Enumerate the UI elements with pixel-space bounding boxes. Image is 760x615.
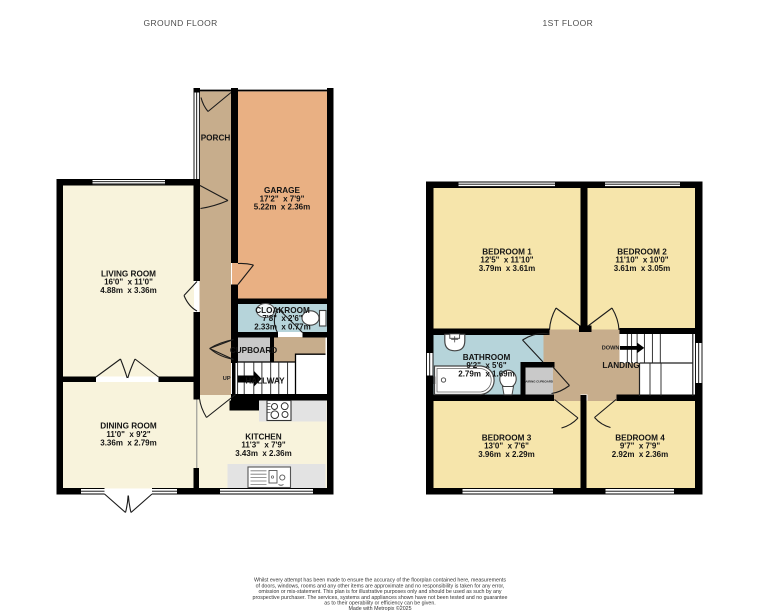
- svg-text:DOWN: DOWN: [602, 346, 620, 352]
- svg-text:3.79m x 3.61m: 3.79m x 3.61m: [479, 264, 535, 273]
- svg-text:3.61m x 3.05m: 3.61m x 3.05m: [614, 264, 670, 273]
- svg-text:UP: UP: [223, 376, 231, 382]
- svg-text:1ST FLOOR: 1ST FLOOR: [543, 18, 594, 28]
- svg-text:GROUND FLOOR: GROUND FLOOR: [144, 18, 218, 28]
- svg-text:LANDING: LANDING: [602, 361, 639, 370]
- svg-text:2.33m x 0.77m: 2.33m x 0.77m: [254, 323, 310, 332]
- svg-text:4.88m x 3.36m: 4.88m x 3.36m: [100, 286, 156, 295]
- svg-text:CUPBOARD: CUPBOARD: [230, 346, 277, 355]
- svg-text:2.92m x 2.36m: 2.92m x 2.36m: [612, 450, 668, 459]
- svg-text:3.36m x 2.79m: 3.36m x 2.79m: [100, 438, 156, 447]
- svg-text:2.79m x 1.69m: 2.79m x 1.69m: [458, 370, 514, 379]
- svg-text:3.96m x 2.29m: 3.96m x 2.29m: [478, 450, 534, 459]
- svg-text:AIRING CUPBOARD: AIRING CUPBOARD: [525, 379, 553, 383]
- svg-text:5.22m x 2.36m: 5.22m x 2.36m: [254, 203, 310, 212]
- svg-text:Made with Metropix ©2025: Made with Metropix ©2025: [348, 605, 411, 612]
- svg-text:PORCH: PORCH: [201, 133, 231, 142]
- svg-text:HALLWAY: HALLWAY: [245, 376, 285, 385]
- svg-text:3.43m x 2.36m: 3.43m x 2.36m: [235, 449, 291, 458]
